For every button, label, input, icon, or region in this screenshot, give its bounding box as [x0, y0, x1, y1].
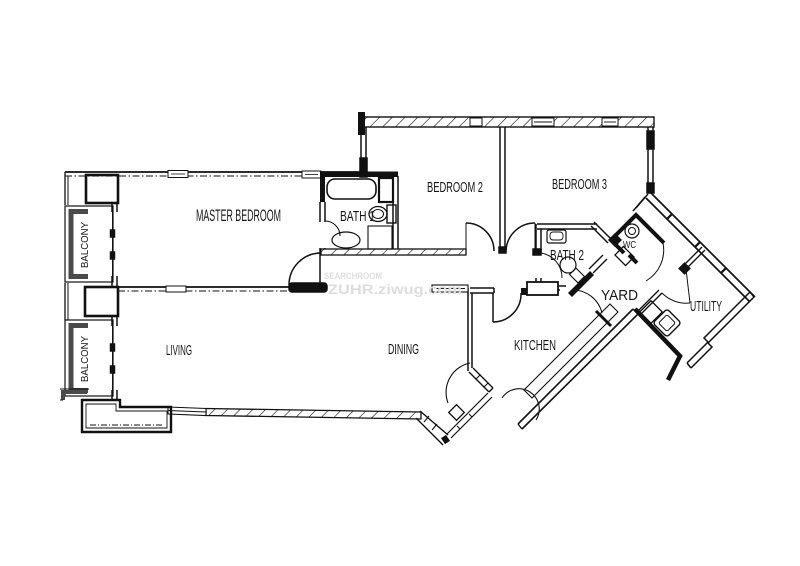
svg-text:KITCHEN: KITCHEN: [514, 338, 556, 354]
svg-text:MASTER BEDROOM: MASTER BEDROOM: [196, 207, 281, 225]
svg-text:UTILITY: UTILITY: [690, 299, 722, 315]
svg-text:BATH 1: BATH 1: [340, 209, 375, 225]
svg-text:ZUHR.ziwug.com: ZUHR.ziwug.com: [328, 282, 462, 297]
svg-text:BEDROOM 2: BEDROOM 2: [427, 180, 483, 196]
svg-text:WC: WC: [623, 240, 636, 251]
svg-text:LIVING: LIVING: [166, 343, 192, 359]
svg-text:SEARCHROOM: SEARCHROOM: [324, 271, 382, 281]
svg-text:BATH 2: BATH 2: [550, 248, 584, 264]
svg-text:BALCONY: BALCONY: [80, 222, 91, 268]
svg-text:BALCONY: BALCONY: [80, 336, 91, 382]
svg-text:BEDROOM 3: BEDROOM 3: [552, 177, 607, 193]
svg-text:YARD: YARD: [601, 288, 638, 304]
svg-text:DINING: DINING: [388, 342, 419, 358]
